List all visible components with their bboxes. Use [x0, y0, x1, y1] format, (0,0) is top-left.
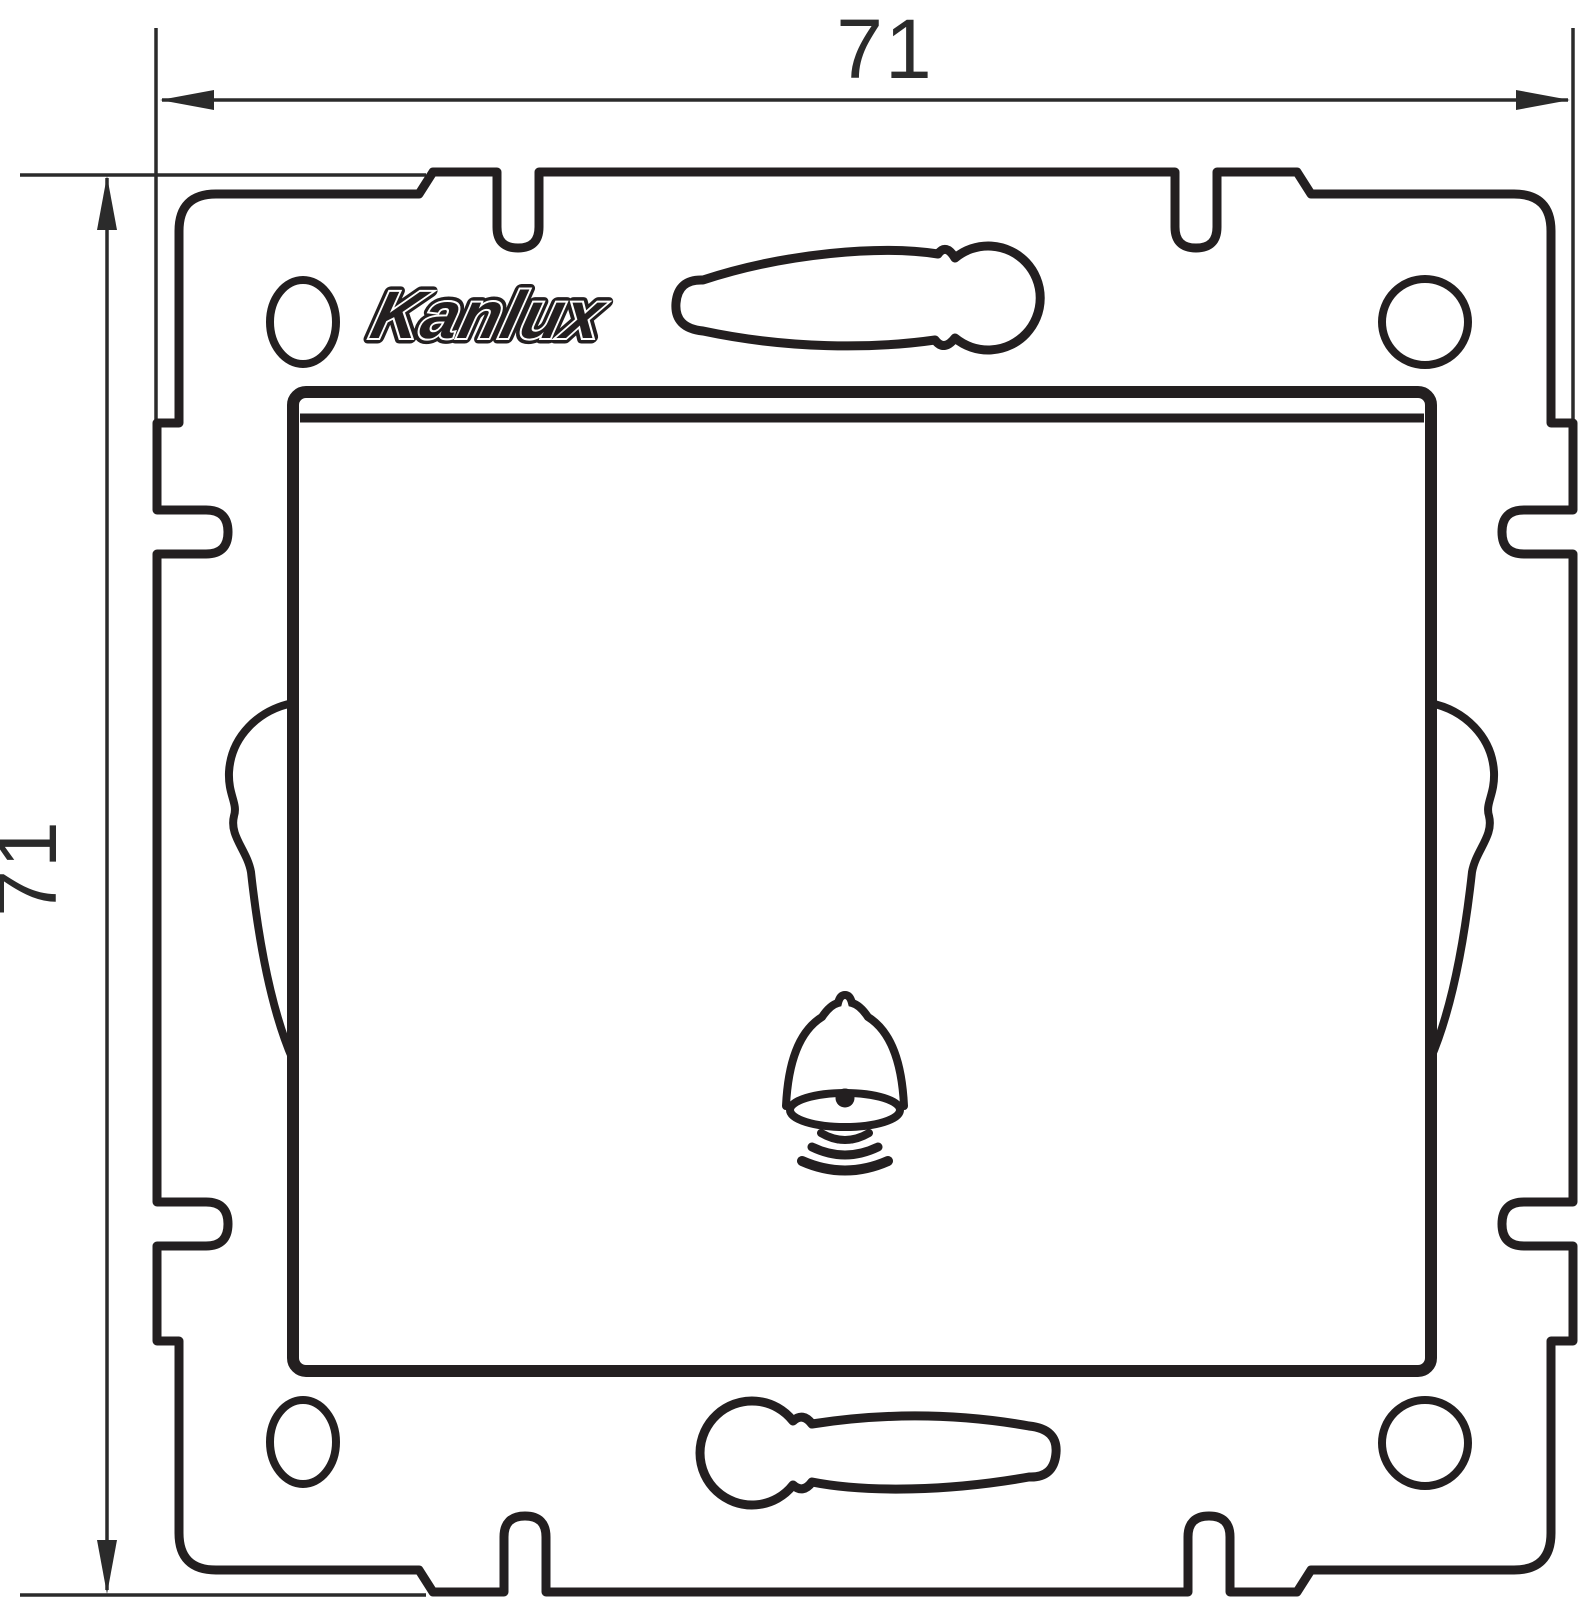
dimension-height-label: 71	[0, 819, 74, 916]
screw-hole-bottom-right	[1382, 1400, 1468, 1486]
arrowhead-right-icon	[1516, 90, 1570, 110]
arrowhead-left-icon	[160, 90, 214, 110]
kanlux-logo-fill: Kanlux	[364, 278, 614, 353]
screw-hole-bottom-left	[270, 1400, 336, 1484]
arrowhead-down-icon	[97, 1540, 117, 1594]
screw-hole-top-right	[1382, 279, 1468, 365]
spring-claw-right	[1430, 703, 1494, 1060]
kanlux-logo: Kanlux Kanlux Kanlux	[364, 278, 614, 353]
switch-button-opening	[293, 392, 1431, 1371]
dimension-width-label: 71	[836, 2, 933, 96]
arrowhead-up-icon	[97, 176, 117, 230]
adjustment-slot-top	[676, 246, 1040, 350]
adjustment-slot-bottom	[700, 1401, 1056, 1505]
opening-frame	[293, 392, 1431, 1371]
switch-frame-technical-drawing: 71 71	[0, 0, 1582, 1600]
screw-hole-top-left	[270, 280, 336, 364]
spring-claw-left	[229, 703, 293, 1060]
bell-clapper	[836, 1089, 855, 1108]
technical-drawing-page: 71 71	[0, 0, 1582, 1600]
